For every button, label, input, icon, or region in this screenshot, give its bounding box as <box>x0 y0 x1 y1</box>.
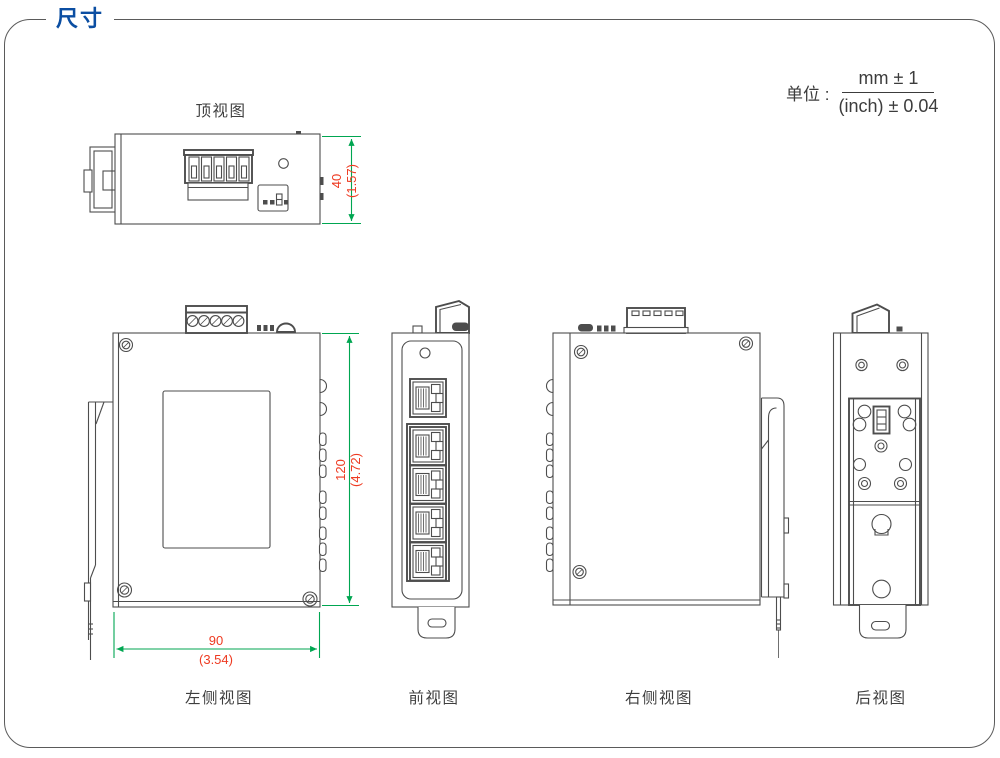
rj45-port-1 <box>410 379 446 417</box>
rj45-port-2 <box>410 427 446 465</box>
device-body-right <box>553 333 760 605</box>
connector-dome <box>277 324 295 333</box>
connector-dome-right <box>578 324 593 332</box>
dimension-width: 90 (3.54) <box>114 612 320 667</box>
din-rail-clip-top <box>84 147 116 212</box>
dimension-height: 120 (4.72) <box>322 334 363 606</box>
height-mm: 120 <box>333 459 348 481</box>
terminal-block-left <box>186 306 247 333</box>
device-body-rear <box>834 333 929 605</box>
rj45-port-3 <box>410 466 446 504</box>
dimension-depth: 40 (1.57) <box>322 137 361 224</box>
rear-view <box>834 305 929 639</box>
terminal-block-top <box>184 150 253 200</box>
rj45-port-4 <box>410 504 446 542</box>
top-view: 40 (1.57) <box>84 131 361 224</box>
port-bumps-right <box>547 380 554 572</box>
right-side-view <box>547 308 789 658</box>
dimension-drawing-page: 尺寸 单位 : mm ± 1 (inch) ± 0.04 <box>0 0 1000 758</box>
rj45-port-5 <box>410 543 446 581</box>
top-view-label: 顶视图 <box>195 99 246 121</box>
technical-drawing: 40 (1.57) <box>0 0 1000 758</box>
depth-inch: (1.57) <box>344 164 359 198</box>
din-rail-clip-left <box>85 402 114 660</box>
depth-mm: 40 <box>329 174 344 188</box>
left-side-view: 120 (4.72) 90 (3.54) <box>85 306 364 667</box>
din-release-tab-rear <box>860 605 907 638</box>
device-body-left <box>113 333 320 607</box>
rear-view-label: 后视图 <box>855 686 906 708</box>
front-view-label: 前视图 <box>408 686 459 708</box>
height-inch: (4.72) <box>348 453 363 487</box>
width-mm: 90 <box>209 633 223 648</box>
dip-switch-top <box>258 185 288 211</box>
terminal-block-right <box>624 308 688 333</box>
din-release-tab-front <box>418 607 455 638</box>
width-inch: (3.54) <box>199 652 233 667</box>
rj45-port-group <box>407 424 449 581</box>
din-rail-clip-right <box>762 398 789 658</box>
front-view <box>392 301 469 638</box>
left-view-label: 左侧视图 <box>185 686 253 708</box>
connector-dome-front <box>452 323 469 332</box>
right-view-label: 右侧视图 <box>625 686 693 708</box>
terminal-block-rear <box>853 305 890 334</box>
